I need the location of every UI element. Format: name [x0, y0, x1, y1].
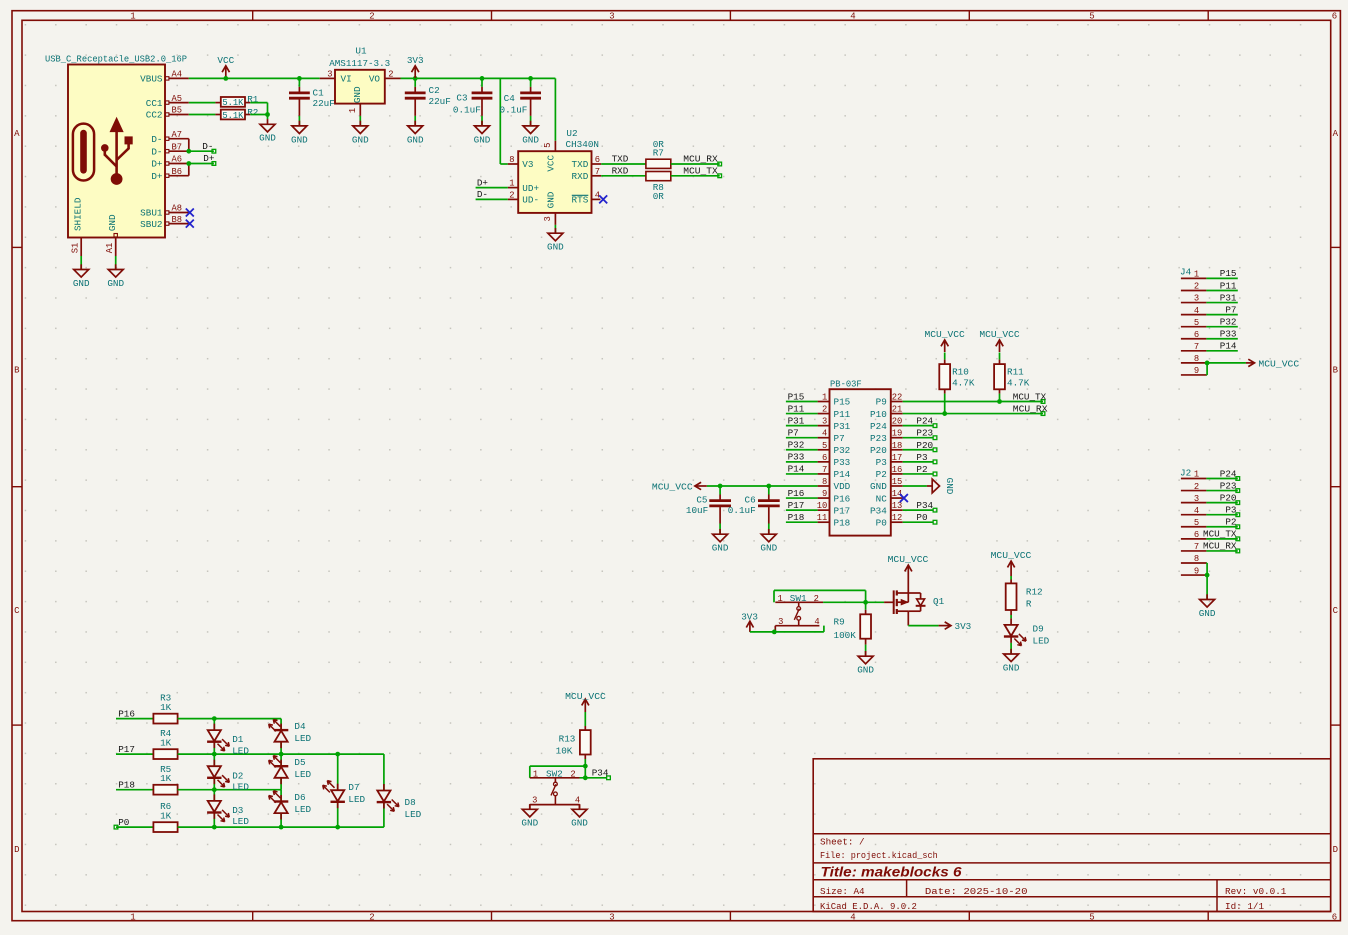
svg-text:1: 1	[348, 108, 358, 113]
svg-text:C3: C3	[456, 93, 467, 104]
svg-text:SBU2: SBU2	[140, 219, 162, 230]
svg-text:VDD: VDD	[834, 481, 851, 492]
svg-text:19: 19	[892, 429, 903, 439]
svg-text:VBUS: VBUS	[140, 74, 163, 85]
svg-text:KiCad E.D.A. 9.0.2: KiCad E.D.A. 9.0.2	[820, 901, 917, 912]
svg-text:P14: P14	[834, 469, 851, 480]
svg-text:2: 2	[814, 594, 819, 604]
svg-text:P17: P17	[788, 500, 805, 511]
svg-text:11: 11	[817, 513, 828, 523]
svg-text:P32: P32	[834, 445, 851, 456]
svg-text:0.1uF: 0.1uF	[453, 104, 481, 115]
svg-text:5: 5	[1089, 912, 1094, 922]
svg-text:GND: GND	[1003, 662, 1020, 673]
svg-text:P31: P31	[1220, 292, 1237, 303]
svg-text:P32: P32	[1220, 316, 1237, 327]
svg-text:2: 2	[1194, 482, 1199, 492]
svg-text:C1: C1	[313, 87, 325, 98]
svg-text:P15: P15	[834, 397, 851, 408]
svg-text:PB-03F: PB-03F	[830, 378, 862, 389]
svg-text:P24: P24	[1220, 468, 1237, 479]
svg-text:P31: P31	[834, 421, 851, 432]
svg-text:P11: P11	[1220, 280, 1237, 291]
svg-text:P24: P24	[870, 421, 887, 432]
svg-text:R7: R7	[653, 148, 664, 159]
svg-text:8: 8	[1194, 354, 1199, 364]
svg-text:6: 6	[1194, 530, 1199, 540]
svg-text:Size: A4: Size: A4	[820, 886, 865, 897]
svg-text:10: 10	[817, 501, 828, 511]
svg-text:U1: U1	[355, 46, 367, 57]
svg-text:D7: D7	[348, 782, 359, 793]
svg-text:2: 2	[509, 190, 514, 200]
svg-text:LED: LED	[294, 769, 311, 780]
svg-text:GND: GND	[1199, 608, 1216, 619]
svg-text:MCU_VCC: MCU_VCC	[652, 481, 693, 492]
svg-text:22uF: 22uF	[429, 96, 451, 107]
svg-text:3: 3	[1194, 294, 1199, 304]
svg-text:2: 2	[369, 912, 374, 922]
svg-text:D4: D4	[294, 721, 306, 732]
svg-text:SW1: SW1	[790, 593, 807, 604]
svg-text:GND: GND	[474, 134, 491, 145]
svg-text:P33: P33	[1220, 329, 1237, 340]
svg-text:3: 3	[609, 12, 614, 22]
svg-text:P16: P16	[788, 488, 805, 499]
svg-text:MCU_RX: MCU_RX	[683, 154, 718, 165]
svg-text:2: 2	[369, 12, 374, 22]
svg-text:P7: P7	[834, 433, 845, 444]
svg-text:B7: B7	[172, 142, 183, 152]
svg-text:3: 3	[327, 70, 332, 80]
svg-text:4: 4	[814, 617, 819, 627]
svg-text:P11: P11	[788, 403, 805, 414]
svg-text:LED: LED	[232, 816, 249, 827]
svg-text:B: B	[14, 366, 20, 376]
svg-text:R11: R11	[1007, 366, 1024, 377]
svg-text:P23: P23	[1220, 480, 1237, 491]
svg-text:P23: P23	[916, 428, 933, 439]
svg-text:5.1K: 5.1K	[222, 98, 244, 108]
svg-text:R9: R9	[834, 617, 845, 628]
svg-text:P10: P10	[870, 409, 887, 420]
svg-text:MCU_TX: MCU_TX	[683, 165, 718, 176]
svg-text:TXD: TXD	[612, 154, 629, 165]
svg-text:P34: P34	[916, 500, 933, 511]
svg-text:GND: GND	[571, 818, 588, 829]
svg-text:P31: P31	[788, 415, 805, 426]
svg-text:Id: 1/1: Id: 1/1	[1225, 901, 1264, 912]
svg-text:GND: GND	[521, 818, 538, 829]
svg-text:3: 3	[822, 417, 827, 427]
svg-text:0R: 0R	[653, 191, 665, 202]
svg-text:1K: 1K	[160, 738, 172, 749]
svg-text:GND: GND	[352, 86, 363, 103]
svg-text:2: 2	[570, 769, 575, 779]
svg-text:A7: A7	[172, 130, 183, 140]
svg-text:D+: D+	[203, 153, 215, 164]
svg-text:SW2: SW2	[546, 768, 563, 779]
svg-text:0.1uF: 0.1uF	[499, 104, 527, 115]
svg-text:C2: C2	[429, 85, 440, 96]
svg-text:4: 4	[575, 795, 580, 805]
svg-text:MCU_VCC: MCU_VCC	[888, 554, 929, 565]
svg-text:P3: P3	[916, 452, 927, 463]
svg-text:D5: D5	[294, 757, 305, 768]
svg-text:P23: P23	[870, 433, 887, 444]
svg-text:D-: D-	[151, 146, 162, 157]
svg-text:J2: J2	[1180, 467, 1191, 478]
svg-text:P34: P34	[870, 505, 887, 516]
svg-text:GND: GND	[352, 134, 369, 145]
svg-text:LED: LED	[294, 804, 311, 815]
svg-text:22uF: 22uF	[313, 98, 335, 109]
svg-text:0.1uF: 0.1uF	[728, 505, 756, 516]
svg-text:B: B	[1333, 366, 1339, 376]
svg-text:3V3: 3V3	[955, 621, 972, 632]
svg-text:13: 13	[892, 501, 903, 511]
svg-text:20: 20	[892, 417, 903, 427]
svg-text:GND: GND	[857, 665, 874, 676]
svg-text:SBU1: SBU1	[140, 208, 163, 219]
svg-text:P2: P2	[1225, 517, 1236, 528]
svg-text:9: 9	[1194, 366, 1199, 376]
svg-text:Q1: Q1	[933, 596, 945, 607]
svg-text:NC: NC	[876, 493, 888, 504]
svg-text:5: 5	[1194, 318, 1199, 328]
svg-text:B8: B8	[172, 215, 183, 225]
svg-text:B5: B5	[172, 106, 183, 116]
svg-text:Sheet: /: Sheet: /	[820, 837, 865, 848]
svg-text:1: 1	[130, 912, 135, 922]
svg-text:3: 3	[1194, 494, 1199, 504]
svg-text:P2: P2	[876, 469, 887, 480]
svg-text:A5: A5	[172, 94, 183, 104]
svg-text:5: 5	[1194, 518, 1199, 528]
svg-text:GND: GND	[547, 242, 564, 253]
svg-text:D-: D-	[151, 134, 162, 145]
svg-text:22: 22	[892, 393, 903, 403]
svg-text:D8: D8	[405, 797, 416, 808]
svg-text:P24: P24	[916, 416, 933, 427]
svg-text:LED: LED	[294, 733, 311, 744]
svg-text:P0: P0	[916, 512, 927, 523]
svg-text:8: 8	[509, 155, 514, 165]
svg-text:D6: D6	[294, 792, 305, 803]
svg-text:A: A	[1333, 129, 1339, 139]
svg-text:CC2: CC2	[146, 110, 163, 121]
svg-text:GND: GND	[107, 278, 124, 289]
svg-text:1: 1	[509, 179, 514, 189]
svg-text:4.7K: 4.7K	[952, 378, 975, 389]
svg-text:GND: GND	[73, 278, 90, 289]
svg-text:LED: LED	[348, 794, 365, 805]
svg-text:4: 4	[850, 912, 855, 922]
svg-text:D-: D-	[202, 141, 213, 152]
svg-text:6: 6	[1332, 912, 1337, 922]
svg-text:UD-: UD-	[522, 195, 539, 206]
svg-text:6: 6	[1194, 330, 1199, 340]
svg-text:8: 8	[1194, 554, 1199, 564]
svg-text:P11: P11	[834, 409, 851, 420]
svg-text:C6: C6	[745, 494, 756, 505]
svg-text:21: 21	[892, 405, 903, 415]
svg-text:5: 5	[1089, 12, 1094, 22]
svg-text:GND: GND	[944, 478, 955, 495]
svg-text:9: 9	[822, 489, 827, 499]
svg-text:10K: 10K	[556, 746, 573, 757]
svg-text:17: 17	[892, 453, 903, 463]
svg-text:AMS1117-3.3: AMS1117-3.3	[329, 58, 390, 69]
svg-text:P18: P18	[118, 779, 135, 790]
svg-text:6: 6	[1332, 12, 1337, 22]
svg-text:USB_C_Receptacle_USB2.0_16P: USB_C_Receptacle_USB2.0_16P	[45, 54, 187, 65]
svg-text:S1: S1	[71, 243, 81, 254]
svg-text:12: 12	[892, 513, 903, 523]
svg-text:MCU_VCC: MCU_VCC	[1258, 358, 1299, 369]
svg-text:4: 4	[1194, 306, 1199, 316]
svg-text:D: D	[14, 845, 19, 855]
svg-text:MCU_VCC: MCU_VCC	[925, 329, 966, 340]
svg-text:GND: GND	[259, 133, 276, 144]
svg-text:A8: A8	[172, 204, 183, 214]
svg-text:4: 4	[1194, 506, 1199, 516]
svg-text:5.1K: 5.1K	[222, 111, 244, 121]
svg-text:D-: D-	[477, 189, 488, 200]
svg-text:UD+: UD+	[522, 183, 539, 194]
svg-text:P17: P17	[834, 505, 851, 516]
svg-text:P0: P0	[876, 517, 887, 528]
svg-text:100K: 100K	[834, 630, 857, 641]
svg-text:GND: GND	[107, 214, 118, 231]
svg-text:18: 18	[892, 441, 903, 451]
svg-text:SHIELD: SHIELD	[73, 197, 84, 231]
svg-text:GND: GND	[870, 481, 887, 492]
svg-text:3: 3	[532, 795, 537, 805]
svg-text:J4: J4	[1180, 266, 1192, 277]
svg-text:Rev: v0.0.1: Rev: v0.0.1	[1225, 886, 1287, 897]
svg-text:MCU_VCC: MCU_VCC	[979, 329, 1020, 340]
svg-text:MCU_RX: MCU_RX	[1013, 403, 1048, 414]
svg-text:D+: D+	[151, 171, 163, 182]
svg-text:P7: P7	[1225, 304, 1236, 315]
svg-text:4: 4	[822, 429, 827, 439]
svg-text:9: 9	[1194, 566, 1199, 576]
svg-text:C4: C4	[504, 93, 516, 104]
svg-text:2: 2	[822, 405, 827, 415]
svg-text:A: A	[14, 129, 20, 139]
svg-text:MCU_VCC: MCU_VCC	[991, 550, 1032, 561]
svg-text:P20: P20	[870, 445, 887, 456]
svg-text:D+: D+	[151, 159, 163, 170]
svg-text:R: R	[1026, 598, 1032, 609]
svg-text:P14: P14	[788, 464, 805, 475]
svg-text:1: 1	[1194, 270, 1199, 280]
svg-text:3V3: 3V3	[407, 55, 424, 66]
svg-text:GND: GND	[760, 543, 777, 554]
svg-text:CH340N: CH340N	[566, 139, 599, 150]
svg-text:P7: P7	[788, 428, 799, 439]
svg-text:D3: D3	[232, 805, 243, 816]
svg-text:D9: D9	[1033, 624, 1044, 635]
svg-text:P14: P14	[1220, 341, 1237, 352]
svg-text:3: 3	[778, 617, 783, 627]
svg-text:8: 8	[822, 477, 827, 487]
svg-text:MCU_RX: MCU_RX	[1203, 541, 1237, 552]
svg-text:VCC: VCC	[217, 55, 234, 66]
svg-text:R2: R2	[247, 107, 258, 118]
svg-text:D1: D1	[232, 734, 244, 745]
svg-text:C: C	[14, 606, 20, 616]
svg-text:TXD: TXD	[572, 159, 589, 170]
svg-text:2: 2	[1194, 282, 1199, 292]
svg-text:P20: P20	[1220, 492, 1237, 503]
svg-text:4: 4	[850, 12, 855, 22]
svg-text:6: 6	[822, 453, 827, 463]
svg-text:RXD: RXD	[572, 171, 589, 182]
svg-text:A6: A6	[172, 155, 183, 165]
svg-text:V3: V3	[522, 159, 533, 170]
svg-text:P33: P33	[834, 457, 851, 468]
svg-text:C5: C5	[696, 494, 707, 505]
svg-text:P34: P34	[592, 768, 609, 779]
svg-text:1: 1	[533, 769, 538, 779]
svg-text:B6: B6	[172, 167, 183, 177]
svg-text:10uF: 10uF	[686, 505, 708, 516]
svg-text:2: 2	[388, 70, 393, 80]
svg-text:5: 5	[822, 441, 827, 451]
svg-text:P15: P15	[788, 391, 805, 402]
svg-text:GND: GND	[546, 191, 557, 208]
svg-text:P18: P18	[834, 517, 851, 528]
svg-text:C: C	[1333, 606, 1339, 616]
svg-text:P2: P2	[916, 464, 927, 475]
svg-text:1K: 1K	[160, 702, 172, 713]
svg-text:1: 1	[778, 594, 783, 604]
svg-text:P0: P0	[118, 817, 129, 828]
svg-text:LED: LED	[405, 809, 422, 820]
svg-text:D2: D2	[232, 770, 243, 781]
svg-text:A4: A4	[172, 70, 183, 80]
svg-text:D: D	[1333, 845, 1338, 855]
svg-text:7: 7	[1194, 342, 1199, 352]
svg-text:D+: D+	[477, 177, 489, 188]
svg-text:RTS: RTS	[572, 195, 589, 206]
svg-text:3: 3	[609, 912, 614, 922]
svg-text:P20: P20	[916, 440, 933, 451]
svg-text:5: 5	[543, 143, 553, 148]
svg-text:1K: 1K	[160, 811, 172, 822]
svg-text:R10: R10	[952, 366, 969, 377]
svg-text:A1: A1	[105, 243, 115, 254]
svg-text:1: 1	[1194, 470, 1199, 480]
svg-text:VI: VI	[341, 74, 352, 85]
svg-text:LED: LED	[232, 745, 249, 756]
svg-text:P16: P16	[834, 493, 851, 504]
svg-text:P15: P15	[1220, 268, 1237, 279]
svg-text:7: 7	[595, 167, 600, 177]
svg-text:CC1: CC1	[146, 98, 163, 109]
svg-text:7: 7	[1194, 542, 1199, 552]
svg-text:File: project.kicad_sch: File: project.kicad_sch	[820, 850, 938, 861]
svg-text:R12: R12	[1026, 586, 1043, 597]
svg-text:16: 16	[892, 465, 903, 475]
svg-text:P32: P32	[788, 440, 805, 451]
svg-text:LED: LED	[232, 781, 249, 792]
svg-text:P18: P18	[788, 512, 805, 523]
svg-text:6: 6	[595, 155, 600, 165]
svg-text:4.7K: 4.7K	[1007, 378, 1030, 389]
svg-text:RXD: RXD	[612, 165, 629, 176]
svg-text:P3: P3	[1225, 505, 1236, 516]
svg-text:Date: 2025-10-20: Date: 2025-10-20	[925, 886, 1028, 897]
svg-text:GND: GND	[712, 543, 729, 554]
svg-text:7: 7	[822, 465, 827, 475]
svg-text:MCU_VCC: MCU_VCC	[565, 691, 606, 702]
svg-text:P16: P16	[118, 708, 135, 719]
svg-text:1K: 1K	[160, 773, 172, 784]
svg-text:R13: R13	[559, 733, 576, 744]
svg-text:P17: P17	[118, 744, 135, 755]
svg-text:LED: LED	[1033, 636, 1050, 647]
svg-text:3: 3	[543, 216, 553, 221]
svg-text:GND: GND	[407, 134, 424, 145]
svg-text:GND: GND	[291, 134, 308, 145]
svg-text:P33: P33	[788, 452, 805, 463]
svg-text:P3: P3	[876, 457, 887, 468]
svg-text:1: 1	[130, 12, 135, 22]
svg-text:MCU_TX: MCU_TX	[1013, 391, 1047, 402]
svg-text:15: 15	[892, 477, 903, 487]
svg-text:U2: U2	[566, 128, 577, 139]
svg-text:Title: makeblocks 6: Title: makeblocks 6	[821, 865, 962, 880]
svg-text:VCC: VCC	[546, 155, 557, 172]
svg-text:VO: VO	[369, 74, 381, 85]
svg-text:MCU_TX: MCU_TX	[1203, 529, 1237, 540]
svg-text:P9: P9	[876, 397, 887, 408]
svg-text:1: 1	[822, 393, 827, 403]
svg-text:GND: GND	[522, 134, 539, 145]
